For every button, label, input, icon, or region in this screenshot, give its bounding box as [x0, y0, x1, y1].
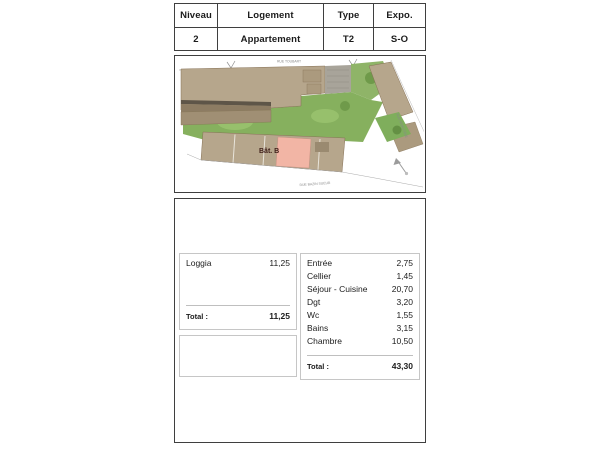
tree-icon [393, 126, 402, 135]
annex-areas-table: Loggia 11,25 Total : 11,25 [179, 253, 297, 330]
room-label: Bains [307, 322, 328, 335]
street-label-top: RUE TOUBART [277, 60, 301, 64]
courtyard-stone [325, 65, 351, 94]
surfaces-section: Loggia 11,25 Total : 11,25 Entrée 2,75 C… [174, 198, 426, 443]
room-area-value: 20,70 [392, 283, 413, 296]
living-total-row: Total : 43,30 [307, 355, 413, 376]
header-type: Type [323, 4, 373, 27]
room-area-value: 10,50 [392, 335, 413, 348]
unit-header-table: Niveau Logement Type Expo. 2 Appartement… [174, 3, 426, 51]
table-row: Dgt 3,20 [307, 296, 413, 309]
room-area-value: 3,20 [396, 296, 413, 309]
header-niveau: Niveau [175, 4, 217, 27]
annex-roof [315, 142, 329, 152]
building-b-label: Bât. B [259, 148, 279, 155]
room-label: Entrée [307, 257, 332, 270]
total-label: Total : [186, 312, 208, 321]
room-area-value: 11,25 [269, 257, 290, 270]
room-label: Chambre [307, 335, 342, 348]
site-plan-panel: RUE TOUBART [174, 55, 426, 193]
value-type: T2 [323, 27, 373, 50]
room-area-value: 2,75 [396, 257, 413, 270]
tree-icon [340, 101, 350, 111]
table-row: Bains 3,15 [307, 322, 413, 335]
room-label: Cellier [307, 270, 331, 283]
annex-roof [303, 70, 321, 82]
room-area-value: 1,55 [396, 309, 413, 322]
annex-roof [307, 84, 321, 94]
annex-total-value: 11,25 [269, 311, 290, 321]
table-row: Chambre 10,50 [307, 335, 413, 348]
table-row: Cellier 1,45 [307, 270, 413, 283]
empty-areas-box [179, 335, 297, 377]
header-expo: Expo. [373, 4, 425, 27]
apartment-fiche-page: Niveau Logement Type Expo. 2 Appartement… [0, 0, 600, 449]
survey-mark-icon [227, 61, 235, 68]
annex-total-row: Total : 11,25 [186, 305, 290, 326]
value-logement: Appartement [217, 27, 323, 50]
room-area-value: 3,15 [396, 322, 413, 335]
living-total-value: 43,30 [392, 361, 413, 371]
room-label: Loggia [186, 257, 212, 270]
site-plan-drawing: RUE TOUBART [175, 56, 424, 191]
living-areas-table: Entrée 2,75 Cellier 1,45 Séjour - Cuisin… [300, 253, 420, 380]
header-logement: Logement [217, 4, 323, 27]
room-label: Dgt [307, 296, 320, 309]
table-row: Wc 1,55 [307, 309, 413, 322]
table-row: Entrée 2,75 [307, 257, 413, 270]
table-row: Séjour - Cuisine 20,70 [307, 283, 413, 296]
room-label: Séjour - Cuisine [307, 283, 367, 296]
compass-icon [394, 158, 409, 175]
total-label: Total : [307, 362, 329, 371]
value-expo: S-O [373, 27, 425, 50]
lawn-patch [311, 109, 339, 123]
value-niveau: 2 [175, 27, 217, 50]
building-b-highlight [276, 137, 311, 168]
room-area-value: 1,45 [396, 270, 413, 283]
table-row: Loggia 11,25 [186, 257, 290, 270]
room-label: Wc [307, 309, 319, 322]
street-label-bottom: RUE BAZIN SUEUR [299, 181, 331, 187]
